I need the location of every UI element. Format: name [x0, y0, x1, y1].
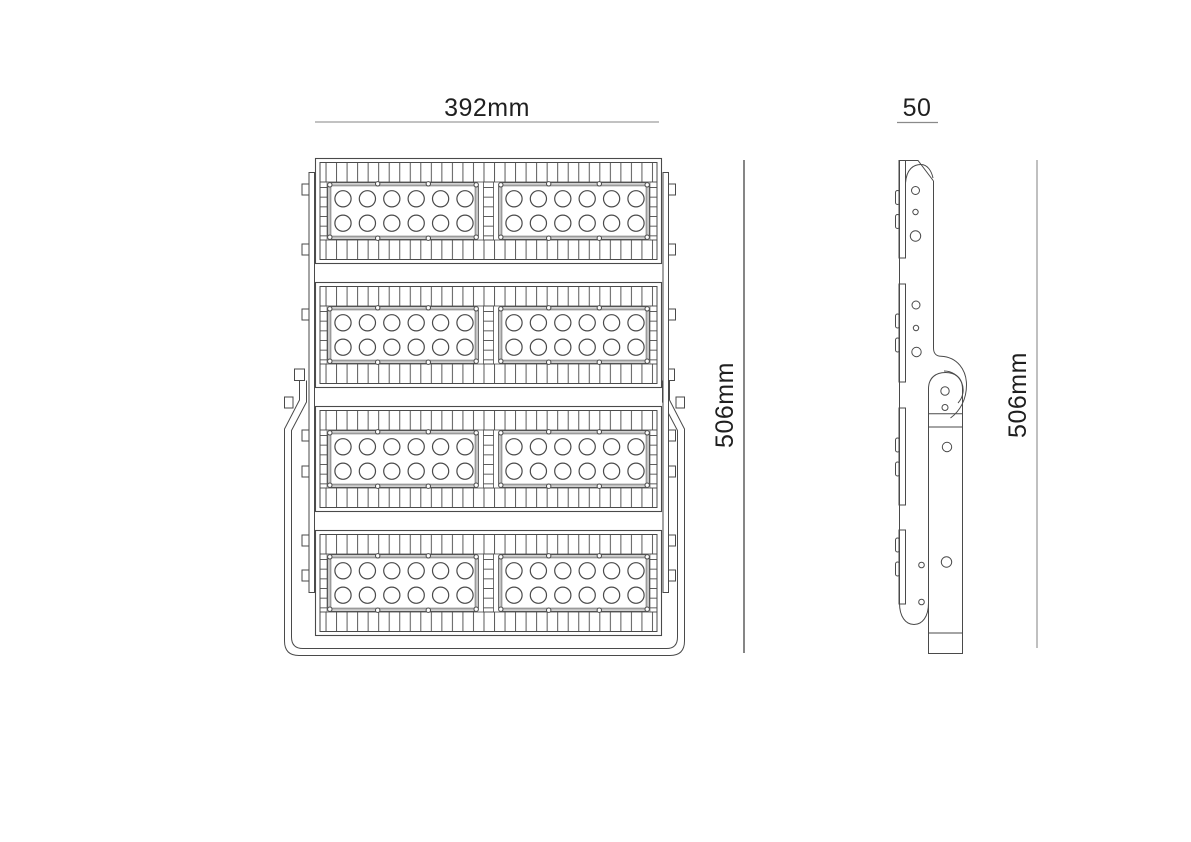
module-row-2: [316, 283, 662, 388]
side-bracket-arm: [929, 373, 963, 654]
module-row-1: [316, 159, 662, 264]
side-body-top-inner-arc: [906, 165, 934, 184]
rail-right: [663, 173, 669, 593]
side-width-dimension-label: 50: [903, 94, 932, 122]
front-height-dimension-label: 506mm: [711, 362, 739, 448]
side-rail-segments: [896, 161, 906, 605]
side-body-left-and-bottom: [900, 161, 929, 625]
side-body-top-edge: [899, 161, 934, 182]
front-width-dimension-label: 392mm: [444, 94, 530, 122]
rail-left: [309, 173, 315, 593]
mounting-tabs-left: [302, 184, 309, 581]
side-body-holes: [910, 187, 924, 605]
drawing-page: 392mm 50 506mm 506mm: [0, 0, 1191, 842]
module-row-4: [316, 531, 662, 636]
side-height-dimension-label: 506mm: [1004, 352, 1032, 438]
module-row-3: [316, 407, 662, 512]
bracket-arm-outline: [929, 373, 963, 654]
front-view: [285, 159, 685, 656]
technical-drawing-canvas: 392mm 50 506mm 506mm: [0, 0, 1191, 842]
side-view: [896, 161, 967, 654]
